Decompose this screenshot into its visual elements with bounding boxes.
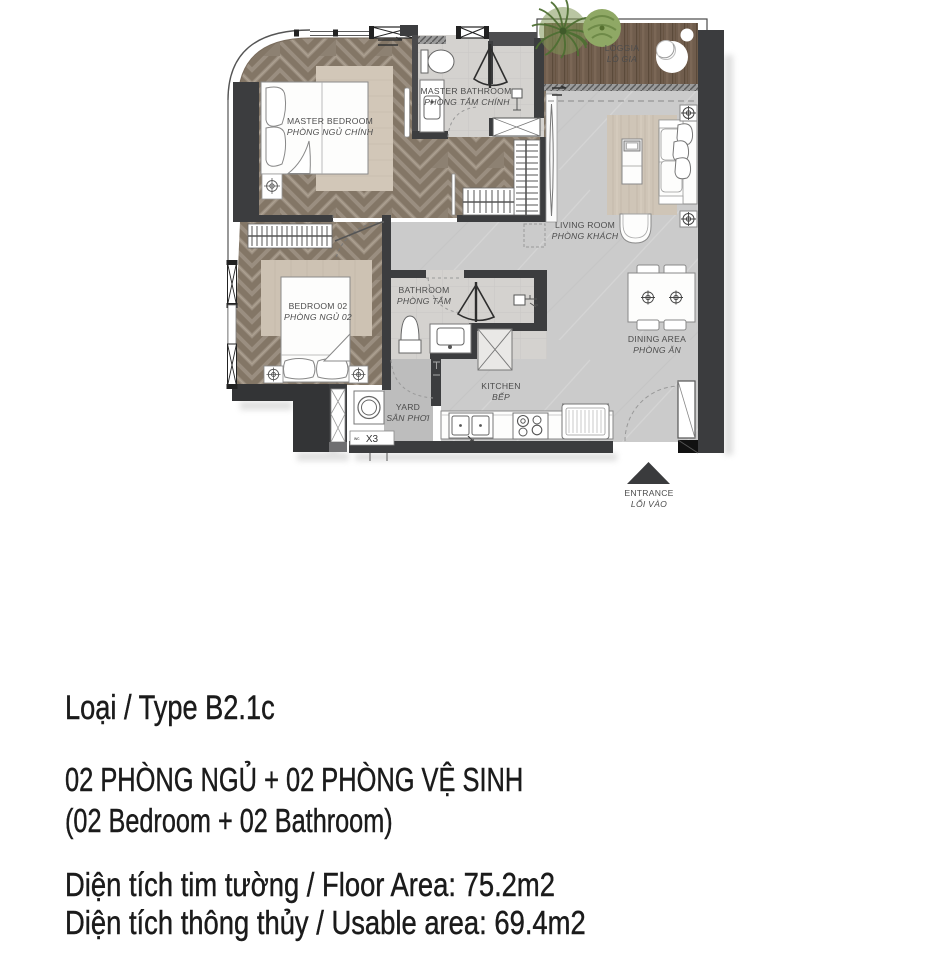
svg-text:LIVING ROOM: LIVING ROOM [555, 220, 615, 230]
svg-text:KITCHEN: KITCHEN [481, 381, 520, 391]
svg-text:X3: X3 [366, 434, 379, 445]
svg-text:PHÒNG NGỦ 02: PHÒNG NGỦ 02 [284, 311, 352, 322]
svg-text:LÔ GIA: LÔ GIA [607, 54, 637, 64]
svg-text:PHÒNG NGỦ CHÍNH: PHÒNG NGỦ CHÍNH [287, 126, 374, 137]
svg-text:wc: wc [354, 436, 360, 441]
svg-text:MASTER BEDROOM: MASTER BEDROOM [287, 116, 373, 126]
svg-text:PHÒNG ĂN: PHÒNG ĂN [633, 345, 681, 355]
svg-text:LỐI VÀO: LỐI VÀO [631, 498, 667, 509]
svg-text:BẾP: BẾP [492, 391, 510, 402]
svg-text:PHÒNG KHÁCH: PHÒNG KHÁCH [552, 231, 619, 241]
svg-text:DINING AREA: DINING AREA [628, 334, 686, 344]
svg-text:PHÒNG TẮM CHÍNH: PHÒNG TẮM CHÍNH [424, 97, 510, 107]
svg-text:BEDROOM 02: BEDROOM 02 [289, 301, 348, 311]
svg-text:LOGGIA: LOGGIA [605, 43, 639, 53]
svg-text:PHÒNG TẮM: PHÒNG TẮM [397, 296, 452, 306]
svg-text:ENTRANCE: ENTRANCE [624, 488, 673, 498]
svg-text:SÂN PHƠI: SÂN PHƠI [386, 413, 430, 423]
svg-text:MASTER BATHROOM: MASTER BATHROOM [421, 86, 512, 96]
svg-text:YARD: YARD [396, 402, 420, 412]
svg-text:BATHROOM: BATHROOM [398, 285, 449, 295]
